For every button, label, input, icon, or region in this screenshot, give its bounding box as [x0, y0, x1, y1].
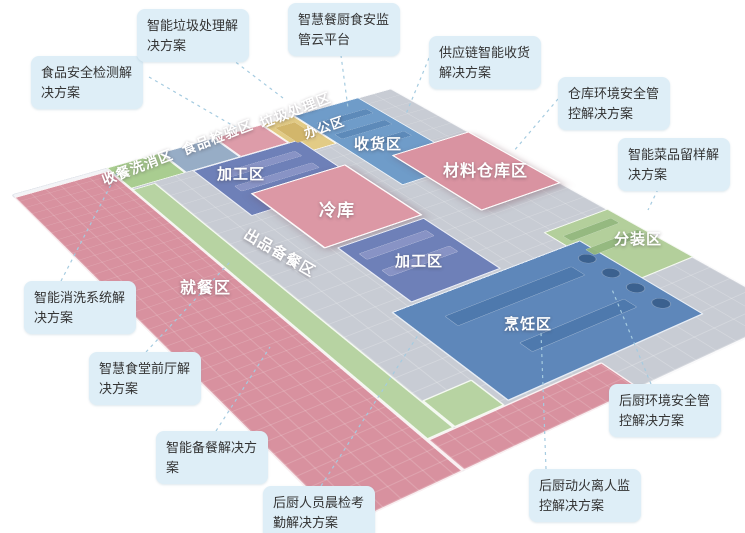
floor-label-cold-storage: 冷库: [319, 196, 355, 221]
callout-supply-chain-receiving: 供应链智能收货解决方案: [429, 36, 541, 89]
callout-food-safety-testing: 食品安全检测解决方案: [31, 56, 143, 109]
floor-label-dining: 就餐区: [180, 274, 231, 298]
callout-smart-washing: 智能消洗系统解决方案: [24, 281, 136, 334]
floor-label-material-warehouse: 材料仓库区: [443, 157, 528, 181]
callout-smart-meal-prep: 智能备餐解决方案: [156, 431, 268, 484]
callout-morning-check: 后厨人员晨检考勤解决方案: [263, 486, 375, 533]
leader-callout-cloud-platform: [340, 48, 348, 108]
canteen-floorplan-diagram: 收餐洗消区食品检验区垃圾处理区办公区收货区材料仓库区加工区冷库加工区出品备餐区就…: [0, 0, 745, 533]
callout-dish-sampling: 智能菜品留样解决方案: [618, 138, 730, 191]
callout-smart-garbage: 智能垃圾处理解决方案: [137, 9, 249, 62]
callout-cloud-platform: 智慧餐厨食安监管云平台: [288, 3, 400, 56]
callout-warehouse-env: 仓库环境安全管控解决方案: [558, 77, 670, 130]
floor-label-processing-2: 加工区: [395, 250, 443, 271]
callout-front-hall: 智慧食堂前厅解决方案: [89, 352, 201, 405]
floor-label-receiving: 收货区: [354, 133, 402, 154]
floor-label-packing: 分装区: [614, 228, 662, 249]
callout-fire-monitoring: 后厨动火离人监控解决方案: [529, 469, 641, 522]
leader-callout-food-safety-testing: [149, 77, 237, 128]
floor-label-processing-1: 加工区: [217, 163, 265, 184]
callout-kitchen-env: 后厨环境安全管控解决方案: [609, 384, 721, 437]
floor-label-cooking: 烹饪区: [504, 313, 552, 334]
leader-callout-warehouse-env: [513, 99, 558, 152]
